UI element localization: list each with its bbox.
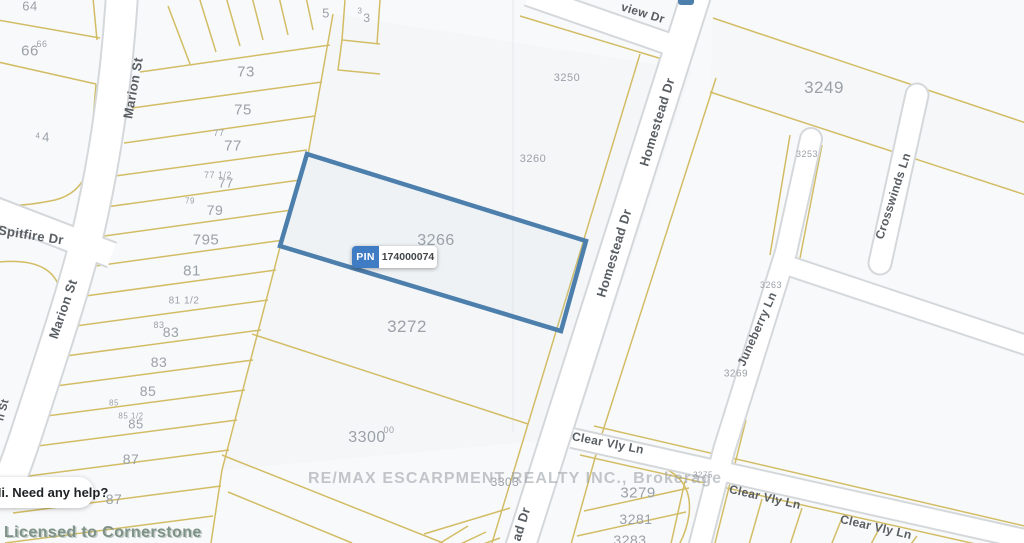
chat-help-text: Hi. Need any help? <box>0 485 108 500</box>
road-unnamed <box>783 264 1024 346</box>
pin-badge: PIN <box>352 246 379 268</box>
road-clear-vly-ln <box>572 438 1024 540</box>
map-screenshot: 646666445337375777777 1/27779797958181 1… <box>0 0 1024 543</box>
chat-help-bubble[interactable]: Hi. Need any help? <box>0 477 94 508</box>
pin-pill[interactable]: PIN 174000074 <box>352 246 437 268</box>
pin-value: 174000074 <box>379 246 437 268</box>
map-marker <box>678 0 694 5</box>
parcel-map-canvas[interactable] <box>0 0 1024 543</box>
